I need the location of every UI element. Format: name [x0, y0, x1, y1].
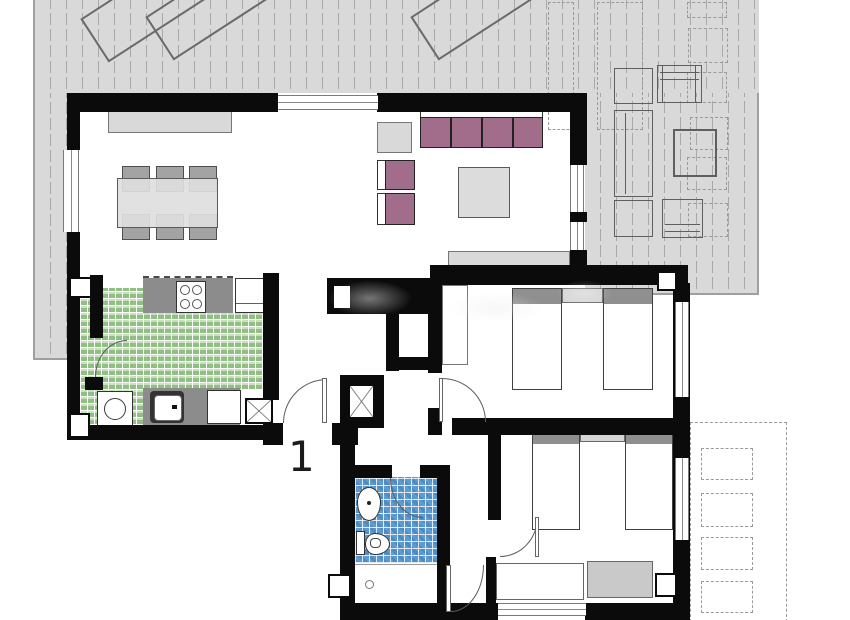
window-living-top — [278, 95, 378, 110]
coffee-table — [458, 167, 510, 218]
wall-bottom-left-seg — [340, 603, 498, 620]
sofa-seat-1 — [420, 117, 451, 148]
stove-burner-1 — [180, 285, 190, 295]
wall-column-terrace-corner — [657, 271, 677, 291]
wall-top-left — [67, 93, 278, 112]
toilet-bowl-inner — [370, 538, 381, 548]
wall-kitchen-right — [263, 273, 279, 400]
door-leaf-hall — [446, 565, 451, 612]
unit-number-label: 1 — [288, 436, 315, 478]
shaft-vent — [348, 384, 375, 419]
bedroom1-bed-1-pillow — [513, 289, 561, 304]
outdoor-side-table — [614, 200, 653, 237]
wall-kitchen-right-stub — [263, 423, 283, 445]
lounge-slat-line — [660, 72, 699, 80]
wall-bedroom1-left — [428, 278, 442, 373]
wall-bottom-right-seg — [585, 603, 690, 620]
kitchen-sink-basin — [154, 395, 182, 421]
wall-niche-bottom-right — [655, 573, 677, 597]
armchair-1-seat — [385, 160, 415, 190]
window-bedroom2-bottom — [498, 603, 586, 616]
lower-terrace-dashed-3 — [701, 537, 753, 570]
kitchen-pass-through-line — [143, 276, 233, 278]
outdoor-lounge-chair-1 — [657, 65, 702, 103]
bedroom1-bed-1 — [512, 288, 562, 390]
outdoor-coffee-table — [673, 129, 717, 177]
bedroom2-wardrobe-2 — [587, 561, 653, 598]
wall-left-lower — [67, 232, 80, 428]
wall-bedroom1-top — [430, 265, 688, 285]
outdoor-sofa-line — [625, 113, 627, 194]
kitchen-floor-main — [143, 313, 278, 390]
kitchen-sink — [150, 391, 184, 423]
outdoor-sofa — [614, 110, 653, 197]
door-leaf-bedroom2 — [535, 517, 539, 557]
wall-living-right-2 — [570, 212, 587, 222]
lounge2-slat-line — [665, 224, 700, 232]
kitchen-sink-tap — [172, 405, 177, 409]
door-arc-bedroom1 — [442, 378, 486, 422]
door-leaf-bedroom1 — [439, 378, 443, 422]
toilet-tank — [356, 531, 365, 555]
stove — [176, 281, 206, 313]
wall-living-right-1 — [570, 93, 587, 165]
door-arc-bedroom2 — [500, 517, 538, 557]
terrace-dashed-outline-4 — [688, 28, 728, 63]
washing-machine — [97, 391, 133, 427]
armchair-2 — [377, 193, 415, 225]
wall-niche-kitchen-top — [69, 277, 92, 298]
bedroom2-bed-1 — [532, 425, 580, 530]
sofa-seat-3 — [482, 117, 513, 148]
bedroom1-nightstand — [562, 288, 603, 303]
lounge-side-line — [662, 66, 664, 102]
window-living-right-2 — [570, 222, 584, 250]
window-bedroom2 — [675, 458, 689, 540]
washing-machine-drum — [104, 398, 126, 420]
wall-left-upper — [67, 93, 80, 150]
outdoor-table — [614, 68, 653, 104]
wall-top-right — [377, 93, 587, 112]
lower-terrace-dashed-4 — [701, 581, 753, 613]
window-living-right-1 — [570, 165, 584, 212]
wall-niche-kitchen-bottom — [69, 413, 90, 438]
armchair-2-seat — [385, 193, 415, 225]
sofa-seat-4 — [513, 117, 543, 148]
wall-niche-corridor — [332, 284, 352, 310]
wall-bath-top-left — [340, 465, 392, 478]
lower-terrace-dashed-1 — [701, 448, 753, 480]
terrace-dashed-outline-3 — [687, 2, 727, 18]
bedroom1-wardrobe — [442, 285, 468, 365]
shaft-stub — [332, 423, 358, 445]
roof-panel-2 — [145, 0, 323, 61]
dining-table — [117, 178, 218, 228]
armchair-1 — [377, 160, 415, 190]
wall-bedroom2-left-lower — [486, 557, 496, 603]
sideboard — [108, 110, 232, 133]
bedroom1-bed-2 — [603, 288, 653, 390]
wall-corridor-vert — [386, 303, 399, 371]
kitchen-cabinet-lower — [207, 390, 241, 424]
bathroom-sink-drain — [367, 501, 371, 505]
door-leaf-kitchen — [322, 378, 327, 423]
wall-kitchen-bottom — [67, 425, 282, 440]
tv-side-table — [377, 122, 412, 153]
lounge-side-line2 — [695, 66, 697, 102]
stove-burner-3 — [180, 299, 190, 309]
window-living-left — [63, 150, 79, 232]
bedroom2-wardrobe-1 — [496, 563, 584, 600]
wall-niche-bath — [328, 574, 351, 598]
sofa-seat-2 — [451, 117, 482, 148]
wall-kitchen-inner-stub — [85, 377, 103, 390]
wall-corridor-stub — [399, 357, 430, 370]
bedroom2-bed-2 — [625, 425, 673, 530]
bedroom1-bed-2-pillow — [604, 289, 652, 304]
shower-drain — [365, 580, 374, 589]
stove-burner-4 — [192, 299, 202, 309]
door-arc-kitchen — [283, 379, 327, 423]
lower-terrace-dashed-2 — [701, 493, 753, 527]
shower-room — [355, 564, 437, 604]
outdoor-lounge-chair-2 — [662, 199, 703, 238]
apartment-floor-plan: 1 — [0, 0, 850, 620]
wall-bedroom2-left — [488, 423, 501, 520]
window-bedroom1 — [675, 302, 689, 397]
sofa — [420, 108, 544, 148]
wall-bath-top-right — [420, 465, 450, 478]
kitchen-shaft-vent — [245, 398, 273, 424]
stove-burner-2 — [192, 285, 202, 295]
